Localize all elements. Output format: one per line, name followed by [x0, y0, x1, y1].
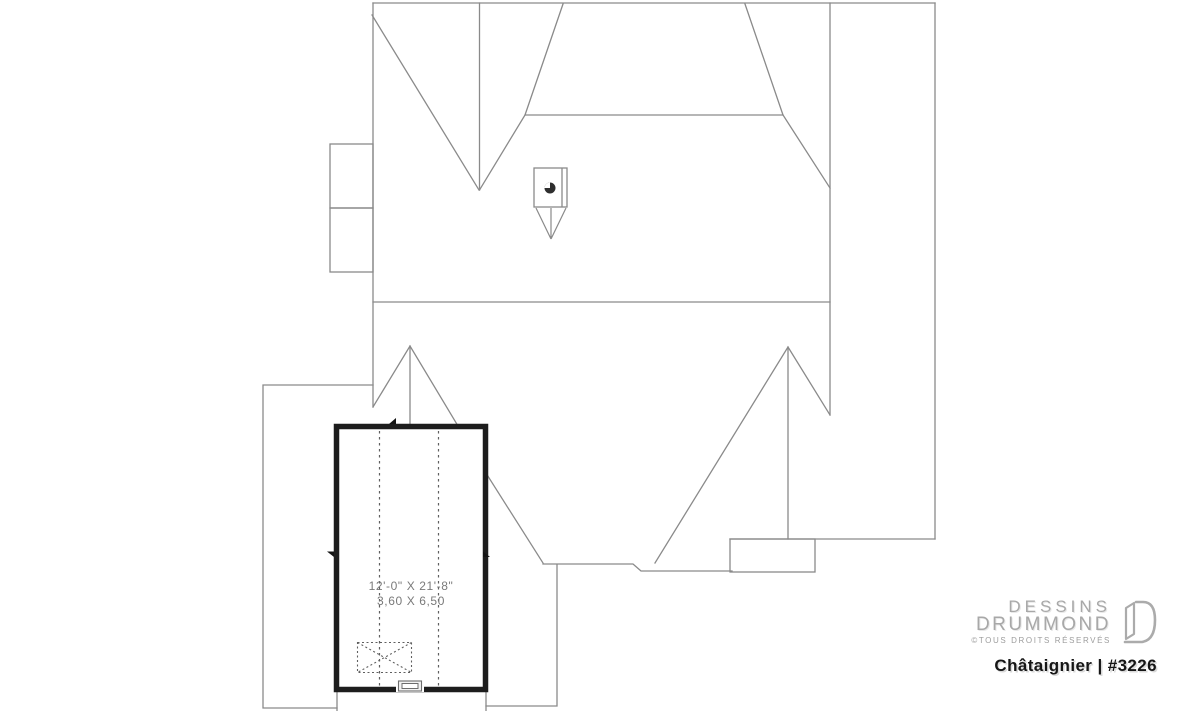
- bonus-room-walls: [337, 427, 486, 690]
- bonus-room: [327, 418, 490, 692]
- room-dimensions-imperial: 12'-0" X 21'-8": [336, 579, 486, 594]
- brand-logo-line1: DESSINS: [1008, 598, 1111, 615]
- brand-logo: DESSINS DRUMMOND ©TOUS DROITS RÉSERVÉS: [971, 598, 1157, 647]
- brand-rights-notice: ©TOUS DROITS RÉSERVÉS: [971, 636, 1111, 645]
- plan-title: Châtaignier | #3226: [994, 656, 1157, 676]
- chimney-icon: [534, 168, 567, 239]
- eave-lines: [484, 470, 815, 572]
- room-dimensions-label: 12'-0" X 21'-8" 3,60 X 6,50: [336, 579, 486, 609]
- brand-logo-line2: DRUMMOND: [976, 615, 1111, 634]
- left-bay-boxes: [330, 144, 373, 272]
- gable-vent-icon: [396, 680, 424, 692]
- roof-plan-canvas: 12'-0" X 21'-8" 3,60 X 6,50 DESSINS DRUM…: [0, 0, 1200, 711]
- room-dimensions-metric: 3,60 X 6,50: [336, 594, 486, 609]
- brand-logo-text: DESSINS DRUMMOND ©TOUS DROITS RÉSERVÉS: [971, 598, 1111, 645]
- brand-block: DESSINS DRUMMOND ©TOUS DROITS RÉSERVÉS C…: [971, 598, 1157, 676]
- drummond-door-icon: [1119, 599, 1157, 647]
